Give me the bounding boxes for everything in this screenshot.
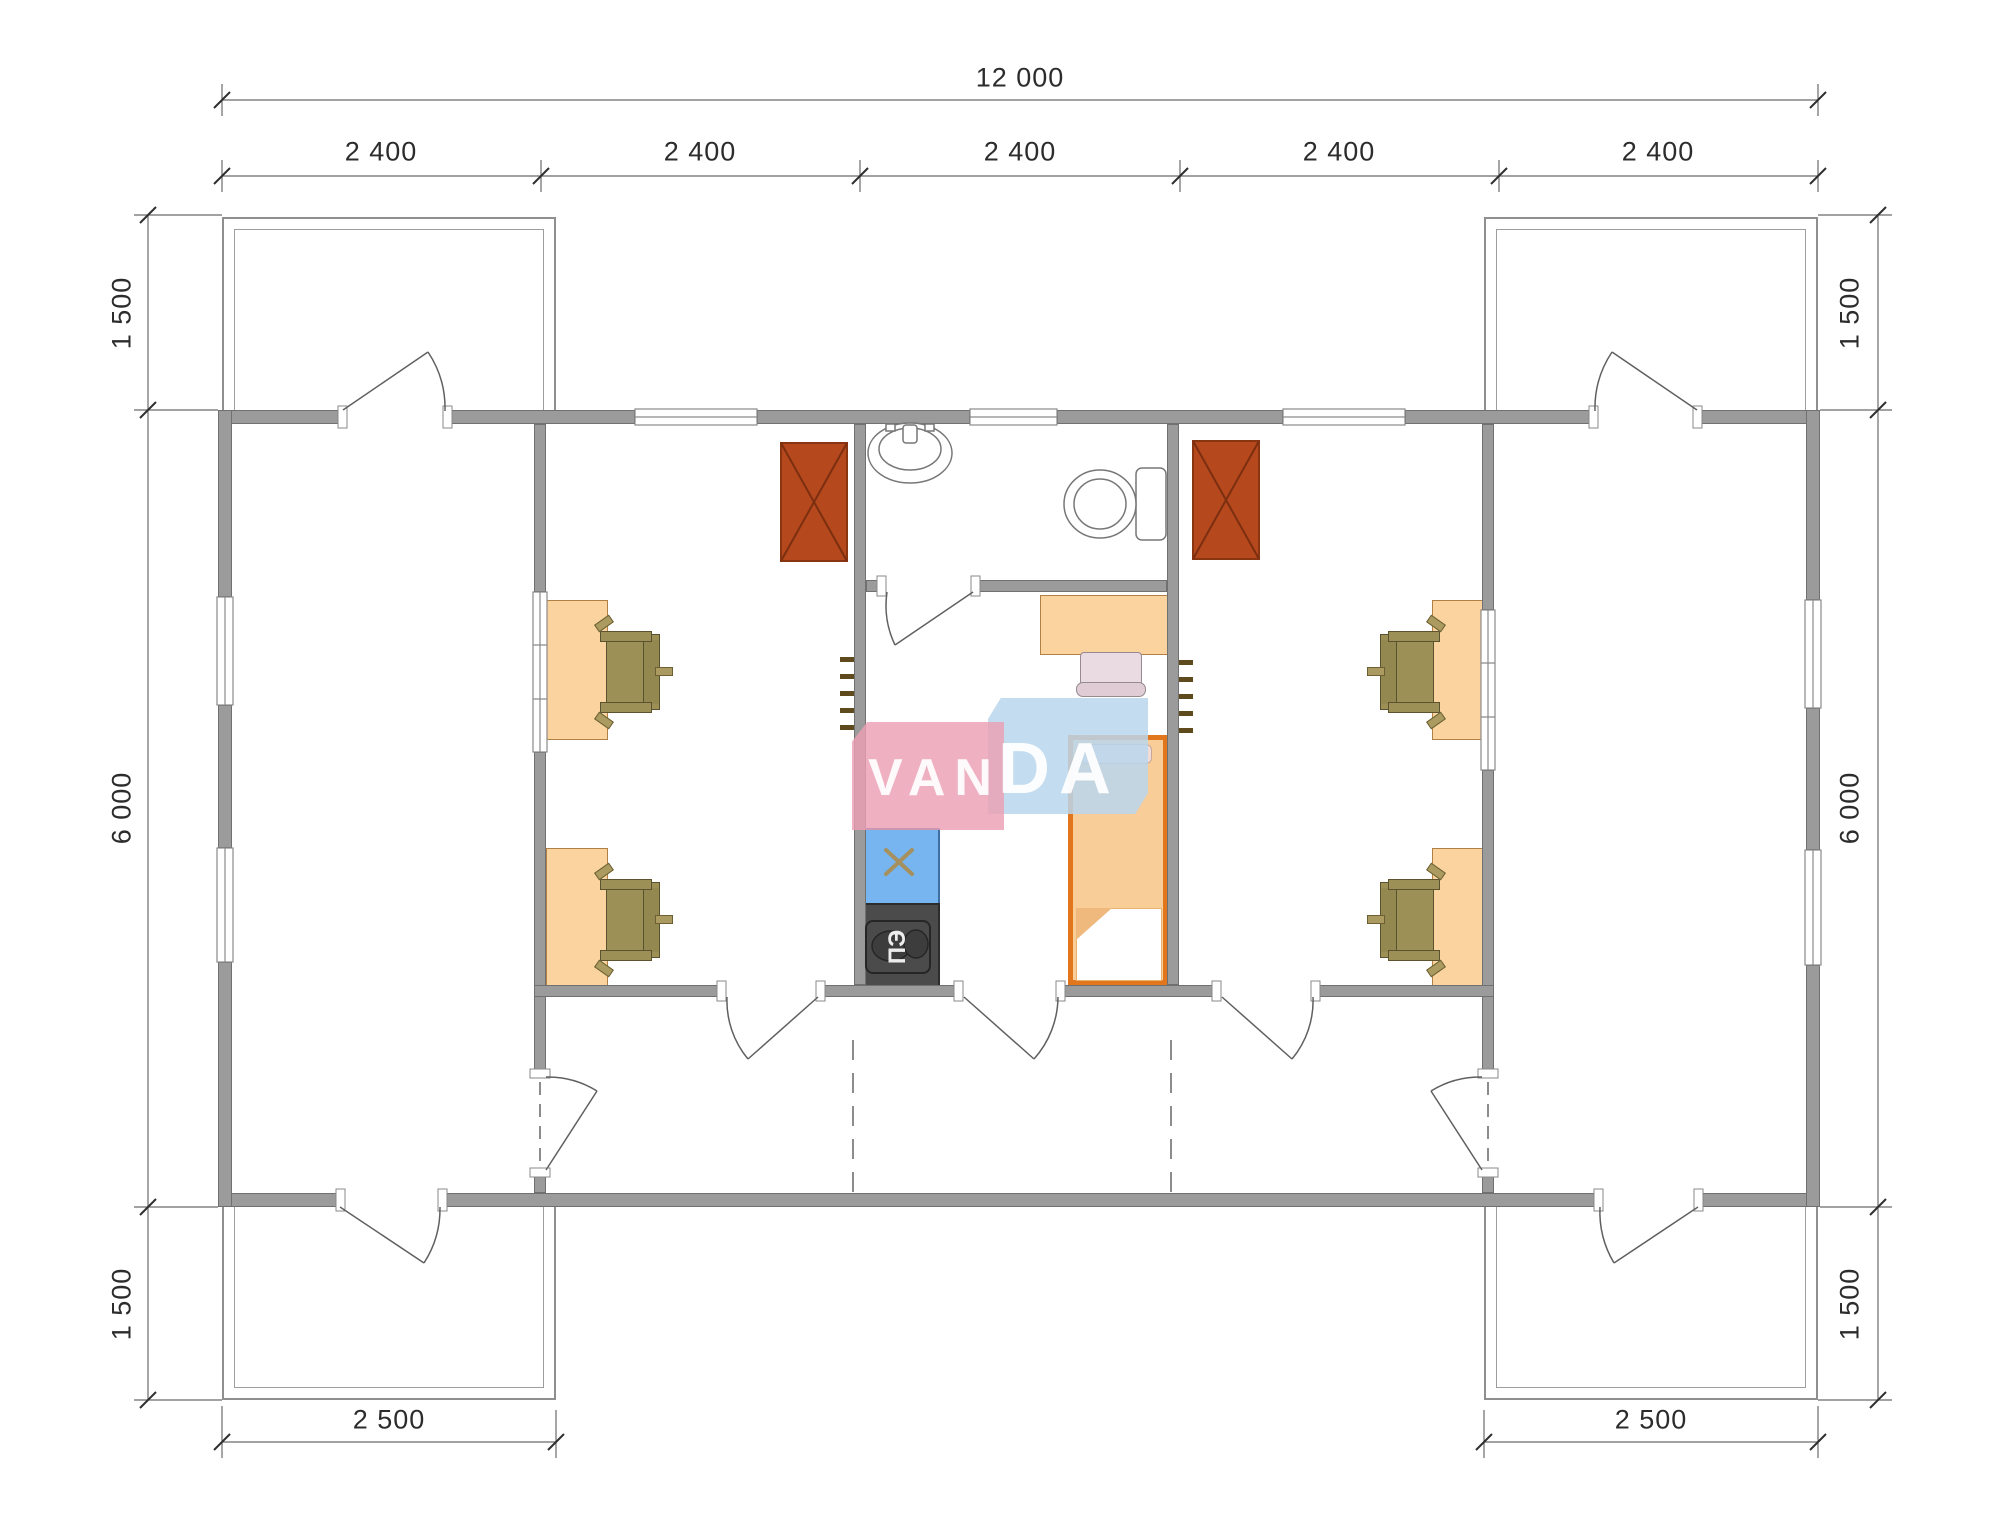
door-swing-icon [546,1077,597,1170]
door-swing-icon [343,352,445,411]
window-icon [217,597,233,705]
stove-cross-lines [781,441,1259,561]
dimension-label: 1 500 [1835,1268,1866,1341]
window-icon [635,409,757,425]
dimension-label: 1 500 [107,277,138,350]
window-icon [1805,850,1821,965]
sink-icon [868,423,952,483]
dimension-label: 2 400 [984,137,1057,168]
electric-stove-text: ПЭ [884,930,912,964]
dimension-label: 2 400 [345,137,418,168]
dimension-label: 2 400 [1622,137,1695,168]
module-dashed-lines [540,1040,1488,1193]
coat-hooks-icon [840,657,854,730]
door-swing-icon [1600,1207,1698,1263]
door-swing-icon [340,1207,440,1263]
watermark-text-van: VAN [868,748,1001,808]
dimension-label: 12 000 [976,63,1065,94]
door-swing-icon [1595,352,1697,411]
window-icon [970,409,1057,425]
dimension-label: 1 500 [1835,277,1866,350]
door-swing-icon [727,997,818,1059]
dimension-label: 6 000 [1835,772,1866,845]
door-swing-icon [886,592,973,645]
toilet-icon [1064,468,1166,540]
window-icon [1283,409,1405,425]
window-icon [217,848,233,962]
watermark-text-da: DA [998,728,1120,810]
door-swing-icon [964,997,1058,1059]
dimension-label: 2 500 [1615,1405,1688,1436]
kitchen-sink-cross [886,850,912,874]
floor-plan: ПЭ VAN DA 12 000 2 400 2 400 2 400 2 400… [0,0,2000,1524]
door-swing-icon [1222,997,1313,1059]
door-swing-icon [1431,1077,1482,1170]
dimension-label: 1 500 [107,1268,138,1341]
coat-hooks-icon [1179,660,1193,733]
dimension-label: 2 400 [1303,137,1376,168]
windows [217,409,1821,965]
dimension-label: 6 000 [107,772,138,845]
window-icon [1805,600,1821,708]
electric-stove-label: ПЭ [873,925,923,969]
dimension-label: 2 500 [353,1405,426,1436]
dimension-label: 2 400 [664,137,737,168]
window-icon [1481,610,1495,770]
window-icon [533,592,547,752]
